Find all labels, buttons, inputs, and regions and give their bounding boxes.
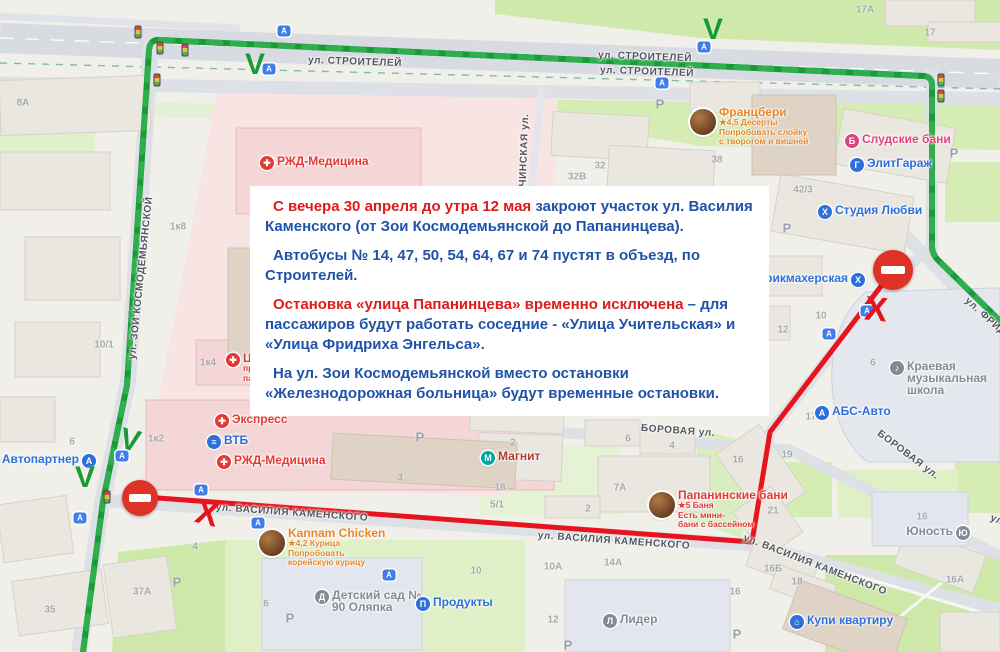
notice-paragraph: Остановка «улица Папанинцева» временно и… bbox=[265, 295, 754, 355]
parking-mark: Р bbox=[173, 575, 182, 590]
photo-avatar-icon bbox=[690, 109, 716, 135]
building-number: 19 bbox=[781, 450, 792, 461]
closed-x-mark: Х bbox=[863, 289, 890, 330]
street-label: ул. СТРОИТЕЛЕЙ bbox=[308, 55, 402, 69]
kindergarten-icon: Д bbox=[315, 590, 329, 604]
hairdresser-icon: Х bbox=[851, 273, 865, 287]
traffic-light-icon bbox=[182, 44, 189, 57]
no-entry-sign bbox=[873, 250, 913, 290]
traffic-light-icon bbox=[157, 42, 164, 55]
bus-stop-icon: А bbox=[823, 329, 836, 340]
grocery-icon: П bbox=[416, 597, 430, 611]
building-number: 2 bbox=[510, 438, 516, 449]
bank-icon: ≡ bbox=[207, 435, 221, 449]
building-number: 7А bbox=[614, 483, 627, 494]
no-entry-bar bbox=[881, 266, 906, 275]
poi-label-rzd-medicina-bottom: РЖД-Медицина bbox=[234, 454, 326, 466]
street-label: БОРОВАЯ ул. bbox=[875, 428, 941, 482]
building-number: 3 bbox=[397, 473, 403, 484]
building-number: 4 bbox=[669, 441, 675, 452]
photo-avatar-icon bbox=[259, 530, 285, 556]
building-number: 6 bbox=[263, 599, 269, 610]
poi-label-elitgarazh: ЭлитГараж bbox=[867, 157, 932, 169]
building-number: 4 bbox=[192, 542, 198, 553]
street-label: ул. СТРОИТЕЛЕЙ bbox=[598, 50, 692, 64]
poi-label-rzd-medicina-top: РЖД-Медицина bbox=[277, 155, 369, 167]
poi-label-yunost: Юность bbox=[906, 525, 953, 537]
building-number: 16 bbox=[729, 587, 740, 598]
parking-mark: Р bbox=[286, 611, 295, 626]
poi-label-avtopartner: Автопартнер bbox=[2, 453, 79, 465]
medical-cross-icon: ✚ bbox=[226, 353, 240, 367]
bathhouse-icon: Б bbox=[845, 134, 859, 148]
building-number: 35 bbox=[44, 605, 55, 616]
street-label: ул. ВАСИЛИЯ КАМЕНСКОГО bbox=[215, 502, 368, 524]
parking-mark: Р bbox=[416, 430, 425, 445]
building-number: 18 bbox=[494, 483, 505, 494]
parking-mark: Р bbox=[733, 627, 742, 642]
school-icon: Л bbox=[603, 614, 617, 628]
poi-label-francberi: Францбери★4,5 ДесертыПопробовать слойкус… bbox=[719, 106, 808, 147]
building-number: 32В bbox=[568, 172, 586, 183]
bus-stop-icon: А bbox=[383, 570, 396, 581]
notice-text-segment: На ул. Зои Космодемьянской вместо остано… bbox=[265, 365, 719, 402]
street-label: ул. ЗОИ КОСМОДЕМЬЯНСКОЙ bbox=[127, 196, 155, 360]
bus-stop-icon: А bbox=[656, 78, 669, 89]
building-number: 1к8 bbox=[170, 222, 186, 233]
medical-cross-icon: ✚ bbox=[215, 414, 229, 428]
real-estate-icon: ⌂ bbox=[790, 615, 804, 629]
poi-label-lider: Лидер bbox=[620, 613, 657, 625]
building-number: 6 bbox=[625, 434, 631, 445]
building-number: 10 bbox=[815, 311, 826, 322]
bus-stop-icon: А bbox=[278, 26, 291, 37]
traffic-light-icon bbox=[938, 90, 945, 103]
garage-icon: Г bbox=[850, 158, 864, 172]
building-number: 8А bbox=[17, 98, 30, 109]
building-number: 32 bbox=[594, 161, 605, 172]
traffic-light-icon bbox=[154, 74, 161, 87]
notice-text-segment: Остановка «улица Папанинцева» временно и… bbox=[273, 296, 684, 313]
notice-text-segment: С вечера 30 апреля до утра 12 мая bbox=[273, 198, 535, 215]
building-number: 6 bbox=[69, 437, 75, 448]
detour-check-mark: V bbox=[75, 461, 95, 495]
building-number: 16Б bbox=[764, 564, 782, 575]
supermarket-icon: М bbox=[481, 451, 495, 465]
building-number: 1к4 bbox=[200, 358, 216, 369]
parking-mark: Р bbox=[656, 97, 665, 112]
poi-label-magnit: Магнит bbox=[498, 450, 540, 462]
medical-cross-icon: ✚ bbox=[217, 455, 231, 469]
poi-label-kannam-chicken: Kannam Chicken★4,2 КурицаПопробоватькоре… bbox=[288, 527, 385, 568]
road-closure-map: ул. СТРОИТЕЛЕЙул. СТРОИТЕЛЕЙул. СТРОИТЕЛ… bbox=[0, 0, 1000, 652]
poi-label-detsad-olyapka: Детский сад № 90 Оляпка bbox=[332, 589, 427, 613]
poi-label-papaninskie-bani: Папанинские бани★5 БаняЕсть мини-бани с … bbox=[678, 489, 788, 530]
building-number: 14А bbox=[604, 558, 622, 569]
building-number: 16 bbox=[916, 512, 927, 523]
building-number: 1к2 bbox=[148, 434, 164, 445]
building-number: 6 bbox=[870, 358, 876, 369]
sport-icon: Ю bbox=[956, 526, 970, 540]
building-number: 10/1 bbox=[94, 340, 113, 351]
building-number: 12 bbox=[777, 325, 788, 336]
parking-mark: Р bbox=[564, 638, 573, 652]
bus-stop-icon: А bbox=[74, 513, 87, 524]
detour-check-mark: V bbox=[116, 422, 144, 460]
building-number: 2 bbox=[585, 504, 591, 515]
building-number: 17А bbox=[856, 5, 874, 16]
parking-mark: Р bbox=[950, 146, 959, 161]
notice-text-segment: Автобусы № 14, 47, 50, 54, 64, 67 и 74 п… bbox=[265, 247, 700, 284]
closed-x-mark: Х bbox=[191, 492, 222, 535]
building-number: 17 bbox=[924, 28, 935, 39]
street-label: ул. СТРОИТЕЛЕЙ bbox=[600, 65, 694, 79]
poi-label-studia-lubvi: Студия Любви bbox=[835, 204, 922, 216]
poi-label-produkty: Продукты bbox=[433, 596, 493, 608]
building-number: 38 bbox=[711, 155, 722, 166]
building-number: 16 bbox=[732, 455, 743, 466]
traffic-light-icon bbox=[938, 74, 945, 87]
building-number: 18 bbox=[791, 577, 802, 588]
parking-mark: Р bbox=[783, 221, 792, 236]
car-service-icon: А bbox=[815, 406, 829, 420]
poi-label-vtb: ВТБ bbox=[224, 434, 248, 446]
traffic-light-icon bbox=[104, 491, 111, 504]
poi-label-abs-avto: АБС-Авто bbox=[832, 405, 891, 417]
building-number: 10А bbox=[544, 562, 562, 573]
no-entry-bar bbox=[129, 494, 151, 502]
street-label: БОРОВАЯ ул. bbox=[641, 423, 716, 439]
building-number: 10 bbox=[470, 566, 481, 577]
detour-check-mark: V bbox=[703, 13, 723, 47]
street-label: ул. ВАСИЛИЯ КАМЕНСКОГО bbox=[537, 530, 690, 552]
bus-stop-icon: А bbox=[252, 518, 265, 529]
medical-cross-icon: ✚ bbox=[260, 156, 274, 170]
photo-avatar-icon bbox=[649, 492, 675, 518]
street-label: ул. ВАСИЛИЯ КАМЕНСКОГО bbox=[989, 512, 1000, 577]
traffic-light-icon bbox=[135, 26, 142, 39]
detour-check-mark: V bbox=[245, 48, 265, 82]
notice-paragraph: На ул. Зои Космодемьянской вместо остано… bbox=[265, 364, 754, 404]
building-number: 5/1 bbox=[490, 500, 504, 511]
poi-label-kupi-kvartiru: Купи квартиру bbox=[807, 614, 893, 626]
building-number: 42/3 bbox=[793, 185, 812, 196]
studio-icon: Х bbox=[818, 205, 832, 219]
music-school-icon: ♪ bbox=[890, 361, 904, 375]
poi-label-sludskie-bani: Слудские бани bbox=[862, 133, 951, 145]
no-entry-sign bbox=[122, 480, 158, 516]
poi-label-music-school: Краевая музыкальная школа bbox=[907, 360, 999, 396]
closure-notice-box: С вечера 30 апреля до утра 12 мая закрою… bbox=[250, 186, 769, 416]
building-number: 12 bbox=[547, 615, 558, 626]
building-number: 37А bbox=[133, 587, 151, 598]
building-number: 16А bbox=[946, 575, 964, 586]
notice-paragraph: С вечера 30 апреля до утра 12 мая закрою… bbox=[265, 197, 754, 237]
notice-paragraph: Автобусы № 14, 47, 50, 54, 64, 67 и 74 п… bbox=[265, 246, 754, 286]
